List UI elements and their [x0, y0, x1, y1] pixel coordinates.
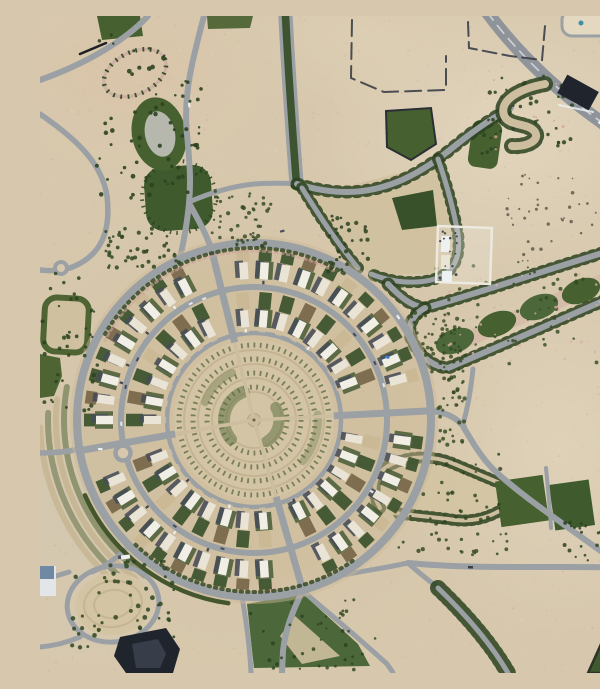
- satellite-image-frame: [40, 16, 600, 673]
- compound-ne-building-2: [441, 255, 450, 269]
- vehicle-left-ext: [98, 448, 103, 451]
- vehicle-truck-cab: [118, 555, 121, 559]
- compound-top-right-pool: [579, 21, 584, 26]
- aerial-satellite-scene: [40, 16, 600, 673]
- hairpin-green-field-b: [549, 479, 595, 530]
- compound-ne-building-1: [441, 236, 451, 252]
- west-park-square: [43, 297, 90, 353]
- compound-ne-building-3: [442, 271, 452, 282]
- vehicle-se-road: [468, 566, 473, 569]
- white-building-w-roof: [40, 566, 54, 579]
- compound-top-right: [562, 16, 600, 36]
- hairpin-green-field-a: [495, 475, 549, 527]
- roundabout-west-edge: [55, 262, 67, 274]
- nw-park-top-green-b: [207, 16, 253, 29]
- roundabout-middle-west: [116, 446, 131, 461]
